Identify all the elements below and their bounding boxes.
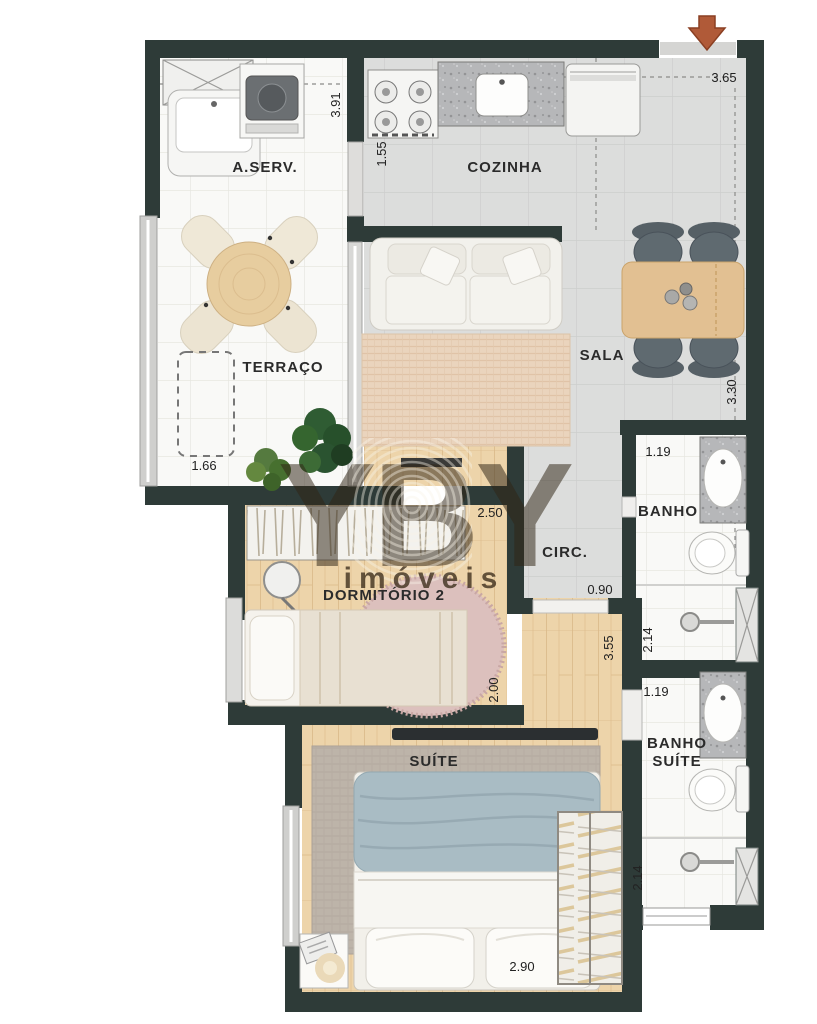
banho-faucet <box>721 460 726 465</box>
dining-table <box>622 262 744 338</box>
room-label-sala: SALA <box>580 347 625 364</box>
sofa-seat <box>470 276 550 324</box>
room-label-cozinha: COZINHA <box>467 159 542 176</box>
table-bowl <box>665 290 679 304</box>
wall-aserv-cozinha-stub <box>347 216 364 242</box>
washer-panel <box>246 124 298 133</box>
banho-suite-faucet <box>721 696 726 701</box>
room-label-suite: SUÍTE <box>409 753 458 770</box>
kitchen-counter <box>438 62 564 126</box>
floor-plan-page: A.SERV. COZINHA TERRAÇO SALA BANHO CIRC.… <box>0 0 817 1024</box>
fridge <box>566 64 640 136</box>
wall-circ-bottom-right <box>608 598 642 614</box>
tv <box>392 728 598 740</box>
banho-suite-toilet <box>689 766 749 812</box>
living-rug <box>362 334 570 446</box>
tank-faucet <box>211 101 217 107</box>
nightstand <box>299 932 348 988</box>
dim-sala-depth: 3.30 <box>724 379 739 404</box>
door-aserv <box>348 142 363 216</box>
stove <box>368 70 438 138</box>
wall-left-aserv <box>145 40 160 218</box>
washing-machine <box>240 64 304 138</box>
wall-suite-bottom <box>285 992 642 1012</box>
watermark: YBY imóveis <box>278 427 573 598</box>
banho-toilet <box>689 530 749 576</box>
dim-circ: 0.90 <box>587 582 612 597</box>
entrance-door <box>660 42 736 55</box>
room-label-banho-suite: BANHOSUÍTE <box>647 735 707 770</box>
door-banho <box>622 497 636 517</box>
dim-sala-width: 3.65 <box>711 70 736 85</box>
dim-banho-suite: 1.19 <box>643 684 668 699</box>
floor-plan: A.SERV. COZINHA TERRAÇO SALA BANHO CIRC.… <box>0 0 817 1024</box>
dim-terraco: 1.66 <box>191 458 216 473</box>
wardrobe-suite <box>558 812 622 984</box>
terrace-table <box>207 242 291 326</box>
wall-dorm2-suite <box>228 705 524 725</box>
dim-suite-hall: 3.55 <box>601 635 616 660</box>
room-label-terraco: TERRAÇO <box>242 359 323 376</box>
dim-banho-box: 2.14 <box>640 627 655 652</box>
sofa-seat <box>386 276 466 324</box>
wall-banho-suite-bottom-left <box>620 905 643 930</box>
room-label-aserv: A.SERV. <box>232 159 297 176</box>
bed-pillow <box>250 616 294 700</box>
wall-aserv-cozinha <box>347 58 364 142</box>
wall-top <box>150 40 659 58</box>
wall-circ-bottom-left <box>507 598 533 614</box>
wall-suite-left-upper <box>285 720 302 808</box>
door-banho-suite <box>622 690 642 740</box>
window-dorm2 <box>226 598 242 702</box>
shower-drain <box>681 613 699 631</box>
dim-aserv: 3.91 <box>328 92 343 117</box>
watermark-subtitle: imóveis <box>344 562 505 595</box>
door-suite <box>533 600 608 613</box>
kitchen-faucet <box>499 79 505 85</box>
banho-sink <box>704 449 742 507</box>
room-label-banho: BANHO <box>638 503 698 520</box>
dim-cozinha: 1.55 <box>374 141 389 166</box>
wall-banho-top <box>620 420 746 435</box>
table-bowl <box>680 283 692 295</box>
wall-banho-left-upper <box>622 435 636 497</box>
bed-blanket <box>300 610 467 706</box>
shower-drain <box>681 853 699 871</box>
dim-suite-width: 2.90 <box>509 959 534 974</box>
dim-dorm2-depth: 2.00 <box>486 677 501 702</box>
wall-suite-right-upper <box>622 614 642 690</box>
single-bed <box>245 610 467 706</box>
table-bowl <box>683 296 697 310</box>
suite-furniture <box>299 728 622 990</box>
sofa <box>370 238 562 330</box>
dim-banho: 1.19 <box>645 444 670 459</box>
dim-banho-suite-box: 2.14 <box>630 865 645 890</box>
banho-suite-sink <box>704 684 742 742</box>
wall-banho-suite-bottom-right <box>710 905 764 930</box>
